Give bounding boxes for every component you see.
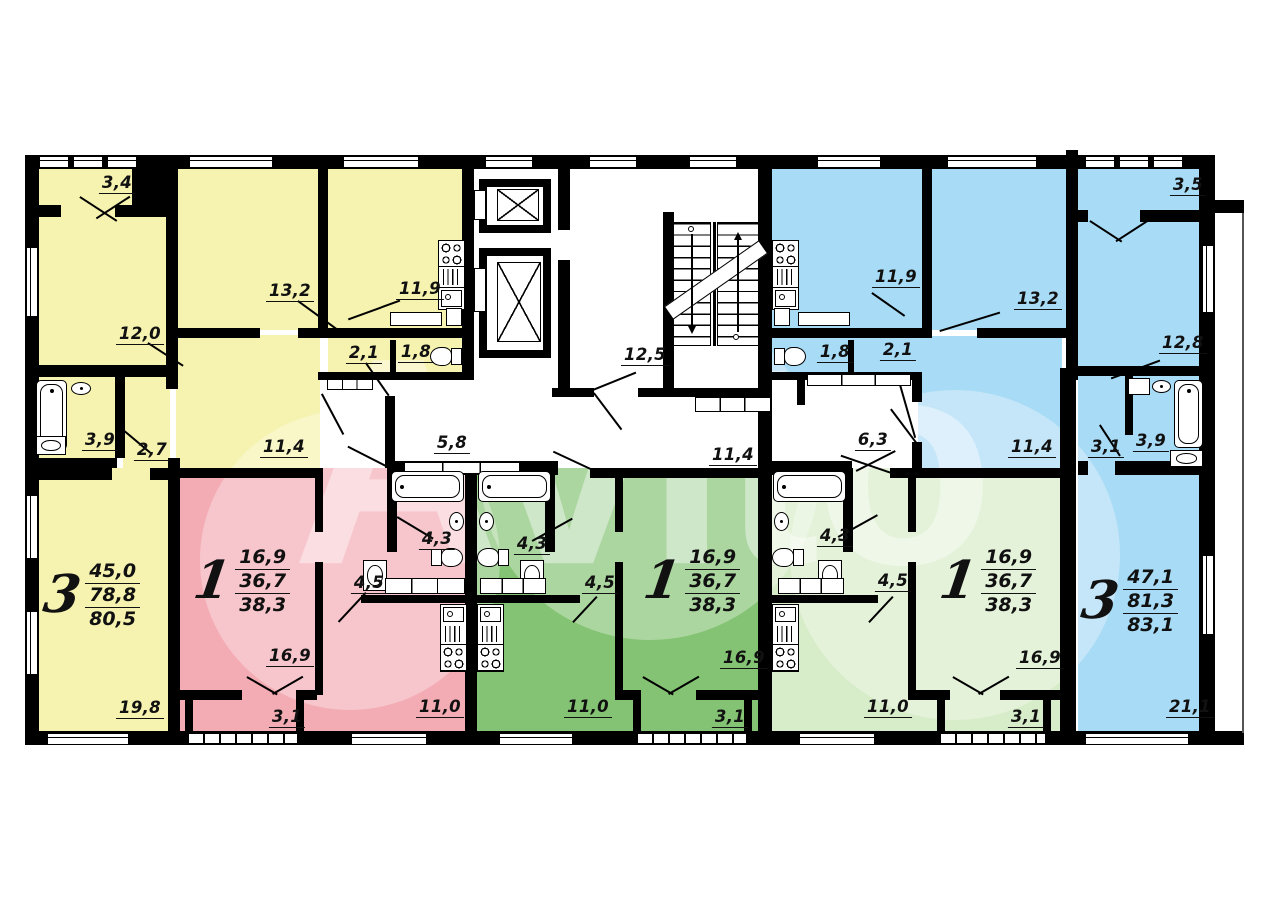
wall [797, 378, 805, 405]
elevator-door [474, 190, 486, 220]
window [590, 156, 636, 168]
area-label: 4,5 [351, 574, 387, 594]
wall [172, 328, 260, 338]
wall [908, 470, 916, 532]
wall [638, 388, 758, 397]
wall [590, 468, 765, 478]
apartment-type-number: 1 [937, 558, 980, 605]
area-label: 1,8 [398, 343, 434, 363]
living-area: 45,0 [85, 560, 140, 584]
area-label: 2,1 [346, 344, 382, 364]
window [344, 156, 418, 168]
usable-area: 36,7 [685, 570, 740, 594]
door-threshold [327, 379, 373, 390]
cabinet-icon [446, 308, 462, 326]
window [26, 248, 38, 316]
wall [908, 690, 950, 700]
apartment-type-label: 3 45,0 78,8 80,5 [44, 560, 140, 631]
counter-icon [480, 578, 546, 594]
apartment-type-label: 3 47,1 81,3 83,1 [1082, 566, 1178, 637]
wall [1078, 210, 1088, 222]
wall [361, 595, 467, 603]
bathtub-icon [391, 471, 464, 502]
stove-icon [772, 604, 799, 672]
window [818, 156, 880, 168]
apartment-areas: 16,9 36,7 38,3 [981, 546, 1036, 617]
area-label: 3,1 [1088, 438, 1124, 458]
wall [1060, 368, 1076, 745]
wall [1140, 210, 1202, 222]
balcony-rail [637, 733, 747, 744]
bathtub-icon [478, 471, 551, 502]
window [1086, 156, 1114, 168]
usable-area: 78,8 [85, 584, 140, 608]
total-area: 80,5 [85, 608, 140, 631]
area-label: 13,2 [266, 282, 314, 302]
stove-icon [440, 604, 467, 672]
sink-icon [774, 512, 789, 531]
area-label: 12,8 [1159, 334, 1207, 354]
area-label: 11,4 [1008, 438, 1056, 458]
apartment-type-label: 1 16,9 36,7 38,3 [644, 546, 740, 617]
stair-start-dot [733, 334, 739, 340]
living-area: 47,1 [1123, 566, 1178, 590]
area-label: 4,3 [419, 530, 455, 550]
area-label: 16,9 [1016, 649, 1064, 669]
window [48, 733, 128, 745]
area-label: 11,4 [260, 438, 308, 458]
area-label: 3,1 [1008, 708, 1044, 728]
area-label: 16,9 [266, 647, 314, 667]
apartment-areas: 16,9 36,7 38,3 [235, 546, 290, 617]
bathtub-icon [773, 471, 846, 502]
apartment-areas: 47,1 81,3 83,1 [1123, 566, 1178, 637]
wall [180, 468, 323, 478]
area-label: 3,1 [269, 708, 305, 728]
window [690, 156, 736, 168]
wall [132, 155, 178, 207]
burners [773, 645, 798, 671]
floor-plan: Avito [0, 0, 1280, 904]
sink-icon [71, 382, 91, 395]
burners [478, 645, 503, 671]
window [948, 156, 1036, 168]
total-area: 38,3 [235, 594, 290, 617]
toilet-icon [430, 347, 462, 365]
total-area: 83,1 [1123, 614, 1178, 637]
apartment-areas: 45,0 78,8 80,5 [85, 560, 140, 631]
table-icon [798, 312, 850, 326]
kitchen-sink [480, 607, 501, 622]
cabinet-icon [1128, 378, 1150, 395]
wall [25, 468, 112, 480]
area-label-stair-hall: 12,5 [621, 346, 669, 366]
window [500, 733, 572, 745]
window [1202, 246, 1214, 312]
sink-icon [1152, 380, 1171, 393]
wall [472, 595, 580, 603]
counter-icon [778, 578, 844, 594]
wall [315, 470, 323, 532]
wall [558, 260, 570, 390]
toilet-icon [431, 548, 463, 566]
total-area: 38,3 [685, 594, 740, 617]
washer-icon [36, 436, 66, 455]
room-left-bedroom2 [178, 167, 320, 330]
area-label: 2,7 [134, 441, 170, 461]
wall [977, 328, 1067, 338]
area-label: 2,1 [880, 341, 916, 361]
window [74, 156, 102, 168]
wall [296, 690, 317, 700]
living-area: 16,9 [981, 546, 1036, 570]
burners [773, 241, 798, 267]
total-area: 38,3 [981, 594, 1036, 617]
wall [615, 470, 623, 532]
area-label: 16,9 [720, 649, 768, 669]
stove-icon [772, 240, 799, 310]
window [108, 156, 136, 168]
area-label: 1,8 [817, 343, 853, 363]
window [1120, 156, 1148, 168]
living-area: 16,9 [685, 546, 740, 570]
window [190, 156, 272, 168]
wall [115, 205, 178, 217]
elevator-door [474, 268, 486, 312]
sink-icon [479, 512, 494, 531]
window [1086, 733, 1188, 745]
burners [441, 645, 466, 671]
counter-icon [385, 578, 465, 594]
area-label-entry-hall-left: 5,8 [434, 434, 470, 454]
area-label: 3,5 [1170, 176, 1206, 196]
kitchen-sink [775, 290, 796, 307]
toilet-icon [772, 548, 804, 566]
wall [150, 468, 180, 480]
kitchen-sink [775, 607, 796, 622]
bathtub-icon [1174, 380, 1203, 448]
apartment-areas: 16,9 36,7 38,3 [685, 546, 740, 617]
washer-icon [1170, 450, 1203, 467]
living-area: 16,9 [235, 546, 290, 570]
area-label: 11,0 [864, 698, 912, 718]
wall [1066, 150, 1078, 380]
table-icon [390, 312, 442, 326]
apartment-type-label: 1 16,9 36,7 38,3 [940, 546, 1036, 617]
apartment-type-label: 1 16,9 36,7 38,3 [194, 546, 290, 617]
usable-area: 36,7 [981, 570, 1036, 594]
window [26, 496, 38, 558]
area-label: 3,4 [99, 174, 135, 194]
balcony-rail [188, 733, 298, 744]
area-label: 3,1 [712, 708, 748, 728]
door-threshold [807, 374, 911, 386]
usable-area: 81,3 [1123, 590, 1178, 614]
balcony-rail [940, 733, 1046, 744]
apartment-type-number: 3 [1079, 578, 1122, 625]
toilet-icon [477, 548, 509, 566]
window [40, 156, 68, 168]
wall [1199, 200, 1244, 213]
wall [1078, 461, 1088, 475]
wall [770, 595, 878, 603]
wall [298, 328, 470, 338]
wall [180, 690, 242, 700]
area-label: 12,0 [116, 325, 164, 345]
burners [439, 241, 464, 267]
area-label: 4,5 [582, 574, 618, 594]
area-label: 21,1 [1166, 698, 1214, 718]
wall [615, 690, 640, 700]
window [26, 612, 38, 674]
area-label: 4,5 [875, 572, 911, 592]
elevator-shaft-large [479, 248, 551, 358]
wall [558, 167, 570, 230]
wall [696, 690, 765, 700]
window [352, 733, 426, 745]
wall [922, 155, 932, 338]
kitchen-sink [443, 607, 464, 622]
wall [890, 468, 1062, 478]
stair-arrow-down [691, 234, 693, 332]
usable-area: 36,7 [235, 570, 290, 594]
area-label: 13,2 [1014, 290, 1062, 310]
drainer [478, 624, 503, 645]
elevator-icon [497, 189, 539, 221]
area-label: 11,0 [416, 698, 464, 718]
cabinet-icon [774, 308, 790, 326]
wall [385, 396, 395, 468]
apartment-type-number: 3 [41, 572, 84, 619]
window [800, 733, 874, 745]
apartment-type-number: 1 [191, 558, 234, 605]
wall [168, 458, 180, 745]
wall [772, 328, 930, 338]
area-label: 19,8 [116, 699, 164, 719]
wall [315, 562, 323, 695]
area-label-entry-hall-right: 6,3 [855, 431, 891, 451]
wall [25, 365, 168, 377]
stair-arrow-up [737, 234, 739, 332]
door-threshold [695, 397, 771, 412]
window [1202, 556, 1214, 634]
area-label-corridor: 11,4 [709, 446, 757, 466]
drainer [441, 624, 466, 645]
apartment-type-number: 1 [641, 558, 684, 605]
area-label: 4,3 [514, 535, 550, 555]
area-label: 3,9 [1133, 432, 1169, 452]
area-label: 11,0 [564, 698, 612, 718]
boundary-line [1242, 213, 1244, 733]
wall [1000, 690, 1062, 700]
window [486, 156, 532, 168]
kitchen-sink [441, 290, 462, 307]
wall [25, 205, 61, 217]
drainer [773, 267, 798, 288]
elevator-icon [497, 262, 541, 342]
window [1154, 156, 1182, 168]
drainer [773, 624, 798, 645]
area-label: 11,9 [872, 268, 920, 288]
area-label: 11,9 [396, 280, 444, 300]
staircase-icon [673, 222, 759, 346]
elevator-shaft-small [479, 179, 551, 233]
stair-start-dot [688, 226, 694, 232]
area-label: 3,9 [82, 431, 118, 451]
toilet-icon [774, 347, 806, 365]
stove-icon [477, 604, 504, 672]
area-label: 4,3 [817, 527, 853, 547]
wall [25, 458, 117, 468]
wall [318, 155, 328, 338]
wall [390, 340, 396, 374]
